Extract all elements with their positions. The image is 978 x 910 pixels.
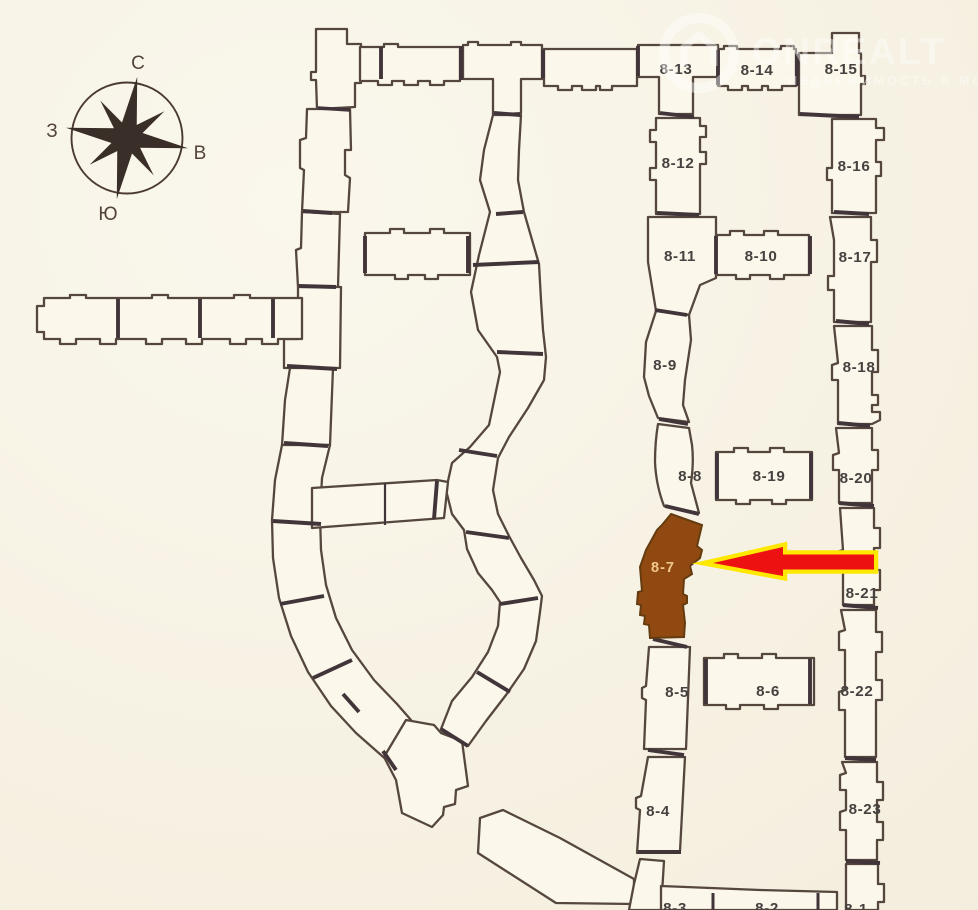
svg-text:8-18: 8-18 (843, 359, 876, 376)
svg-text:8-2: 8-2 (755, 900, 779, 910)
svg-text:8-23: 8-23 (849, 801, 882, 818)
svg-text:8-7: 8-7 (651, 560, 675, 576)
svg-text:8-9: 8-9 (653, 357, 677, 374)
svg-text:8-10: 8-10 (745, 248, 778, 265)
svg-text:8-5: 8-5 (665, 684, 689, 701)
svg-text:8-19: 8-19 (753, 468, 786, 485)
svg-text:ONREALT: ONREALT (752, 31, 946, 72)
svg-text:8-22: 8-22 (841, 683, 874, 700)
svg-text:8-11: 8-11 (664, 248, 696, 265)
svg-text:8-12: 8-12 (662, 155, 695, 172)
svg-text:З: З (46, 121, 57, 142)
svg-text:С: С (131, 53, 145, 74)
svg-text:8-8: 8-8 (678, 468, 702, 485)
svg-text:8-6: 8-6 (756, 683, 780, 700)
svg-text:В: В (194, 143, 207, 164)
svg-text:8-17: 8-17 (839, 249, 872, 266)
svg-text:8-3: 8-3 (663, 900, 687, 910)
svg-text:Ю: Ю (98, 204, 117, 225)
svg-text:8-1: 8-1 (844, 901, 868, 910)
svg-text:НЕДВИЖИМОСТЬ В МОСКВЕ: НЕДВИЖИМОСТЬ В МОСКВЕ (788, 74, 978, 88)
svg-text:8-4: 8-4 (646, 803, 670, 820)
svg-text:8-16: 8-16 (838, 158, 871, 175)
svg-text:8-20: 8-20 (840, 470, 873, 487)
svg-text:8-21: 8-21 (846, 585, 879, 602)
